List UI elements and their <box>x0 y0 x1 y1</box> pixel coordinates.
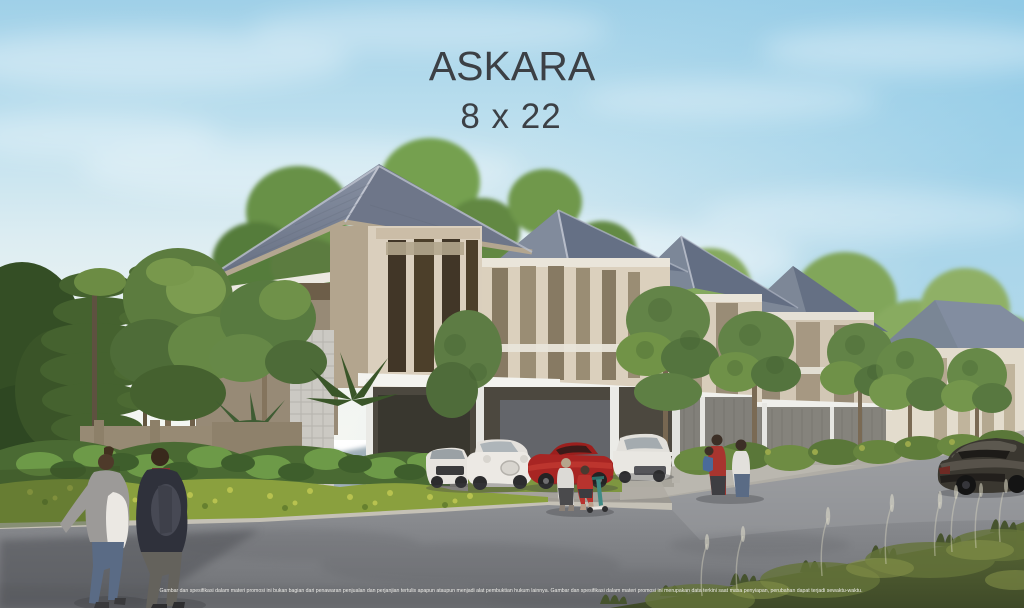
svg-text:ASKARA: ASKARA <box>429 43 596 89</box>
svg-text:8 x 22: 8 x 22 <box>460 97 561 136</box>
svg-text:Gambar dan spesifikasi dalam m: Gambar dan spesifikasi dalam materi prom… <box>159 588 862 594</box>
